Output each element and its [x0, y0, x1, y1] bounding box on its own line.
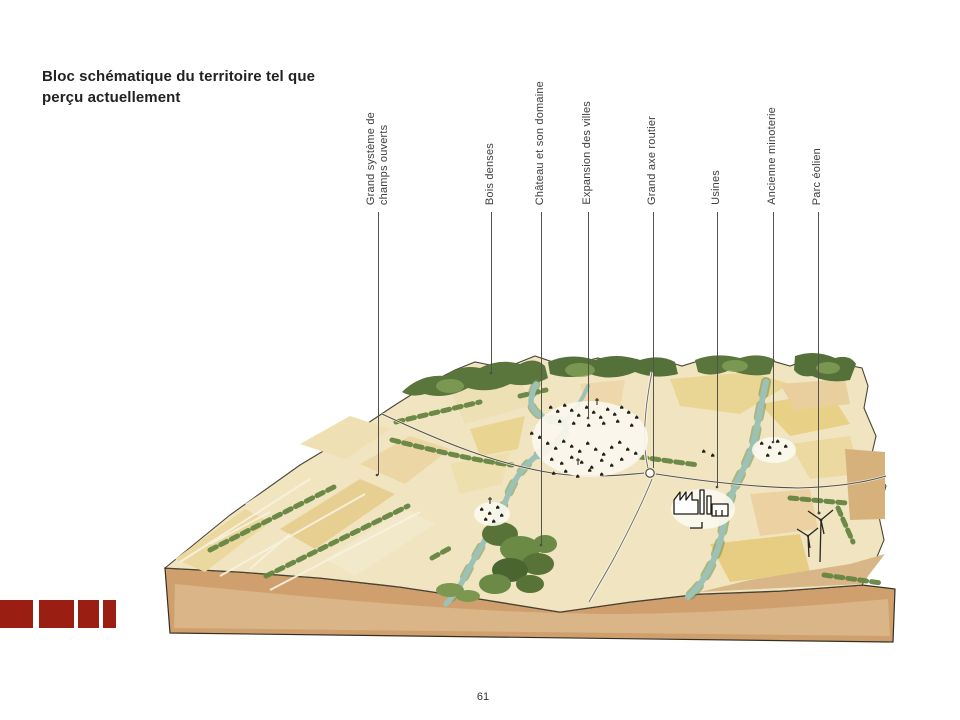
label-chateau-et-son-domaine: Château et son domaine: [534, 81, 547, 205]
leader-line-chateau: [541, 212, 542, 545]
brand-square: [78, 600, 99, 628]
label-bois-denses: Bois denses: [484, 143, 497, 205]
brand-square: [0, 600, 33, 628]
leader-line-axe-routier: [653, 212, 654, 468]
leader-line-bois-denses: [491, 212, 492, 373]
page-title: Bloc schématique du territoire tel que p…: [42, 66, 382, 108]
label-grand-systeme-champs-ouverts: Grand système de champs ouverts: [365, 112, 391, 205]
label-grand-axe-routier: Grand axe routier: [646, 116, 659, 205]
label-parc-eolien: Parc éolien: [811, 148, 824, 205]
terrain-block-illustration: [150, 344, 910, 644]
page-number: 61: [463, 691, 503, 703]
roundabout: [646, 469, 654, 477]
page-title-line1: Bloc schématique du territoire tel que: [42, 66, 382, 87]
brand-square: [103, 600, 116, 628]
leader-line-expansion-villes: [588, 212, 589, 418]
label-ancienne-minoterie: Ancienne minoterie: [766, 107, 779, 205]
leader-line-champs-ouverts: [378, 212, 379, 475]
leader-line-usines: [717, 212, 718, 487]
label-usines: Usines: [710, 170, 723, 205]
page-title-line2: perçu actuellement: [42, 87, 382, 108]
leader-line-minoterie: [773, 212, 774, 442]
document-page: Bloc schématique du territoire tel que p…: [0, 0, 960, 720]
label-expansion-des-villes: Expansion des villes: [581, 101, 594, 205]
leader-line-parc-eolien: [818, 212, 819, 512]
brand-square: [39, 600, 74, 628]
